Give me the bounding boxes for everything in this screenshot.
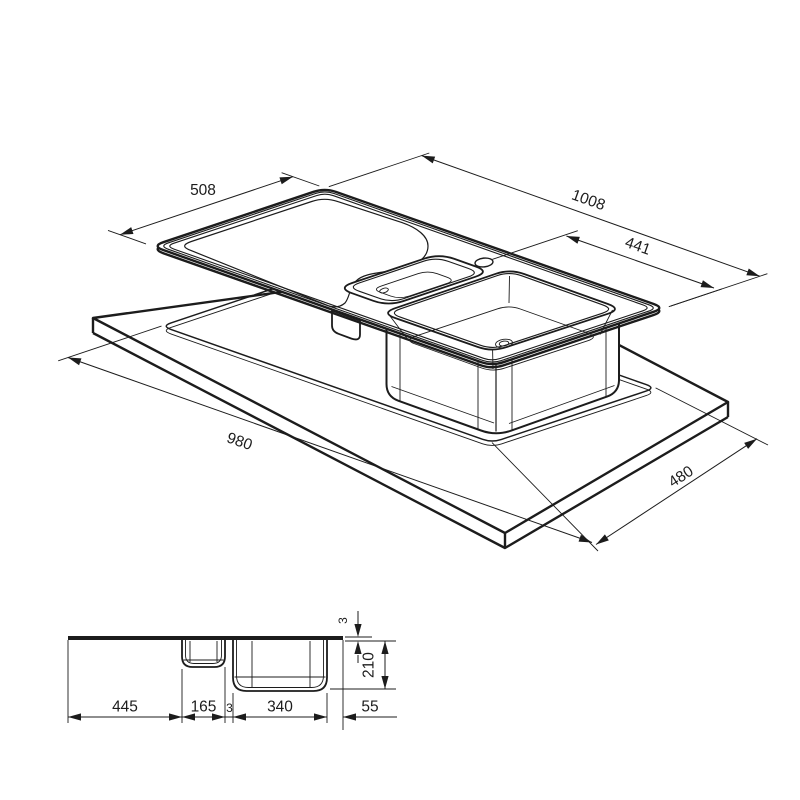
dim-508-label: 508 [190, 182, 216, 199]
dim-165-label: 165 [191, 699, 217, 716]
arrow-55-left [343, 713, 356, 720]
dim-480-label: 480 [666, 463, 697, 492]
dim-480-arrow-right [744, 436, 759, 449]
dim-340-label: 340 [267, 699, 293, 716]
section-small-bowl-outer [182, 640, 225, 667]
dim-210-label: 210 [361, 652, 378, 678]
arrow-340-left [233, 713, 246, 720]
section-main-bowl-tangents [235, 641, 326, 688]
arrow-445-right [169, 713, 182, 720]
section-view: 3 210 445 165 3 340 55 [68, 611, 397, 730]
section-small-bowl-tangents [184, 641, 224, 662]
dim-55-label: 55 [361, 699, 378, 716]
dim-3v-arrow-down [354, 624, 361, 637]
section-main-bowl-outer [233, 640, 327, 691]
arrow-340-right [314, 713, 327, 720]
drawing-svg: 508 1008 441 980 [0, 0, 800, 800]
dim-441-label: 441 [623, 234, 653, 259]
dim-210-arrow-top [381, 641, 388, 654]
dim-445-label: 445 [112, 699, 138, 716]
dim-210-arrow-bottom [381, 676, 388, 689]
dim-3v-arrow-up [354, 641, 361, 654]
dim-980-label: 980 [224, 429, 254, 454]
dim-bowl-depth: 210 [361, 641, 389, 689]
dim-441-arrow-right [701, 280, 716, 291]
dim-bottom-chain: 445 165 3 340 55 [68, 699, 397, 721]
sink-dimension-drawing: 508 1008 441 980 [0, 0, 800, 800]
dim-3v-label: 3 [336, 617, 350, 624]
dim-3-label: 3 [226, 701, 233, 715]
dim-480-arrow-left [594, 534, 609, 547]
arrow-445-left [68, 713, 81, 720]
